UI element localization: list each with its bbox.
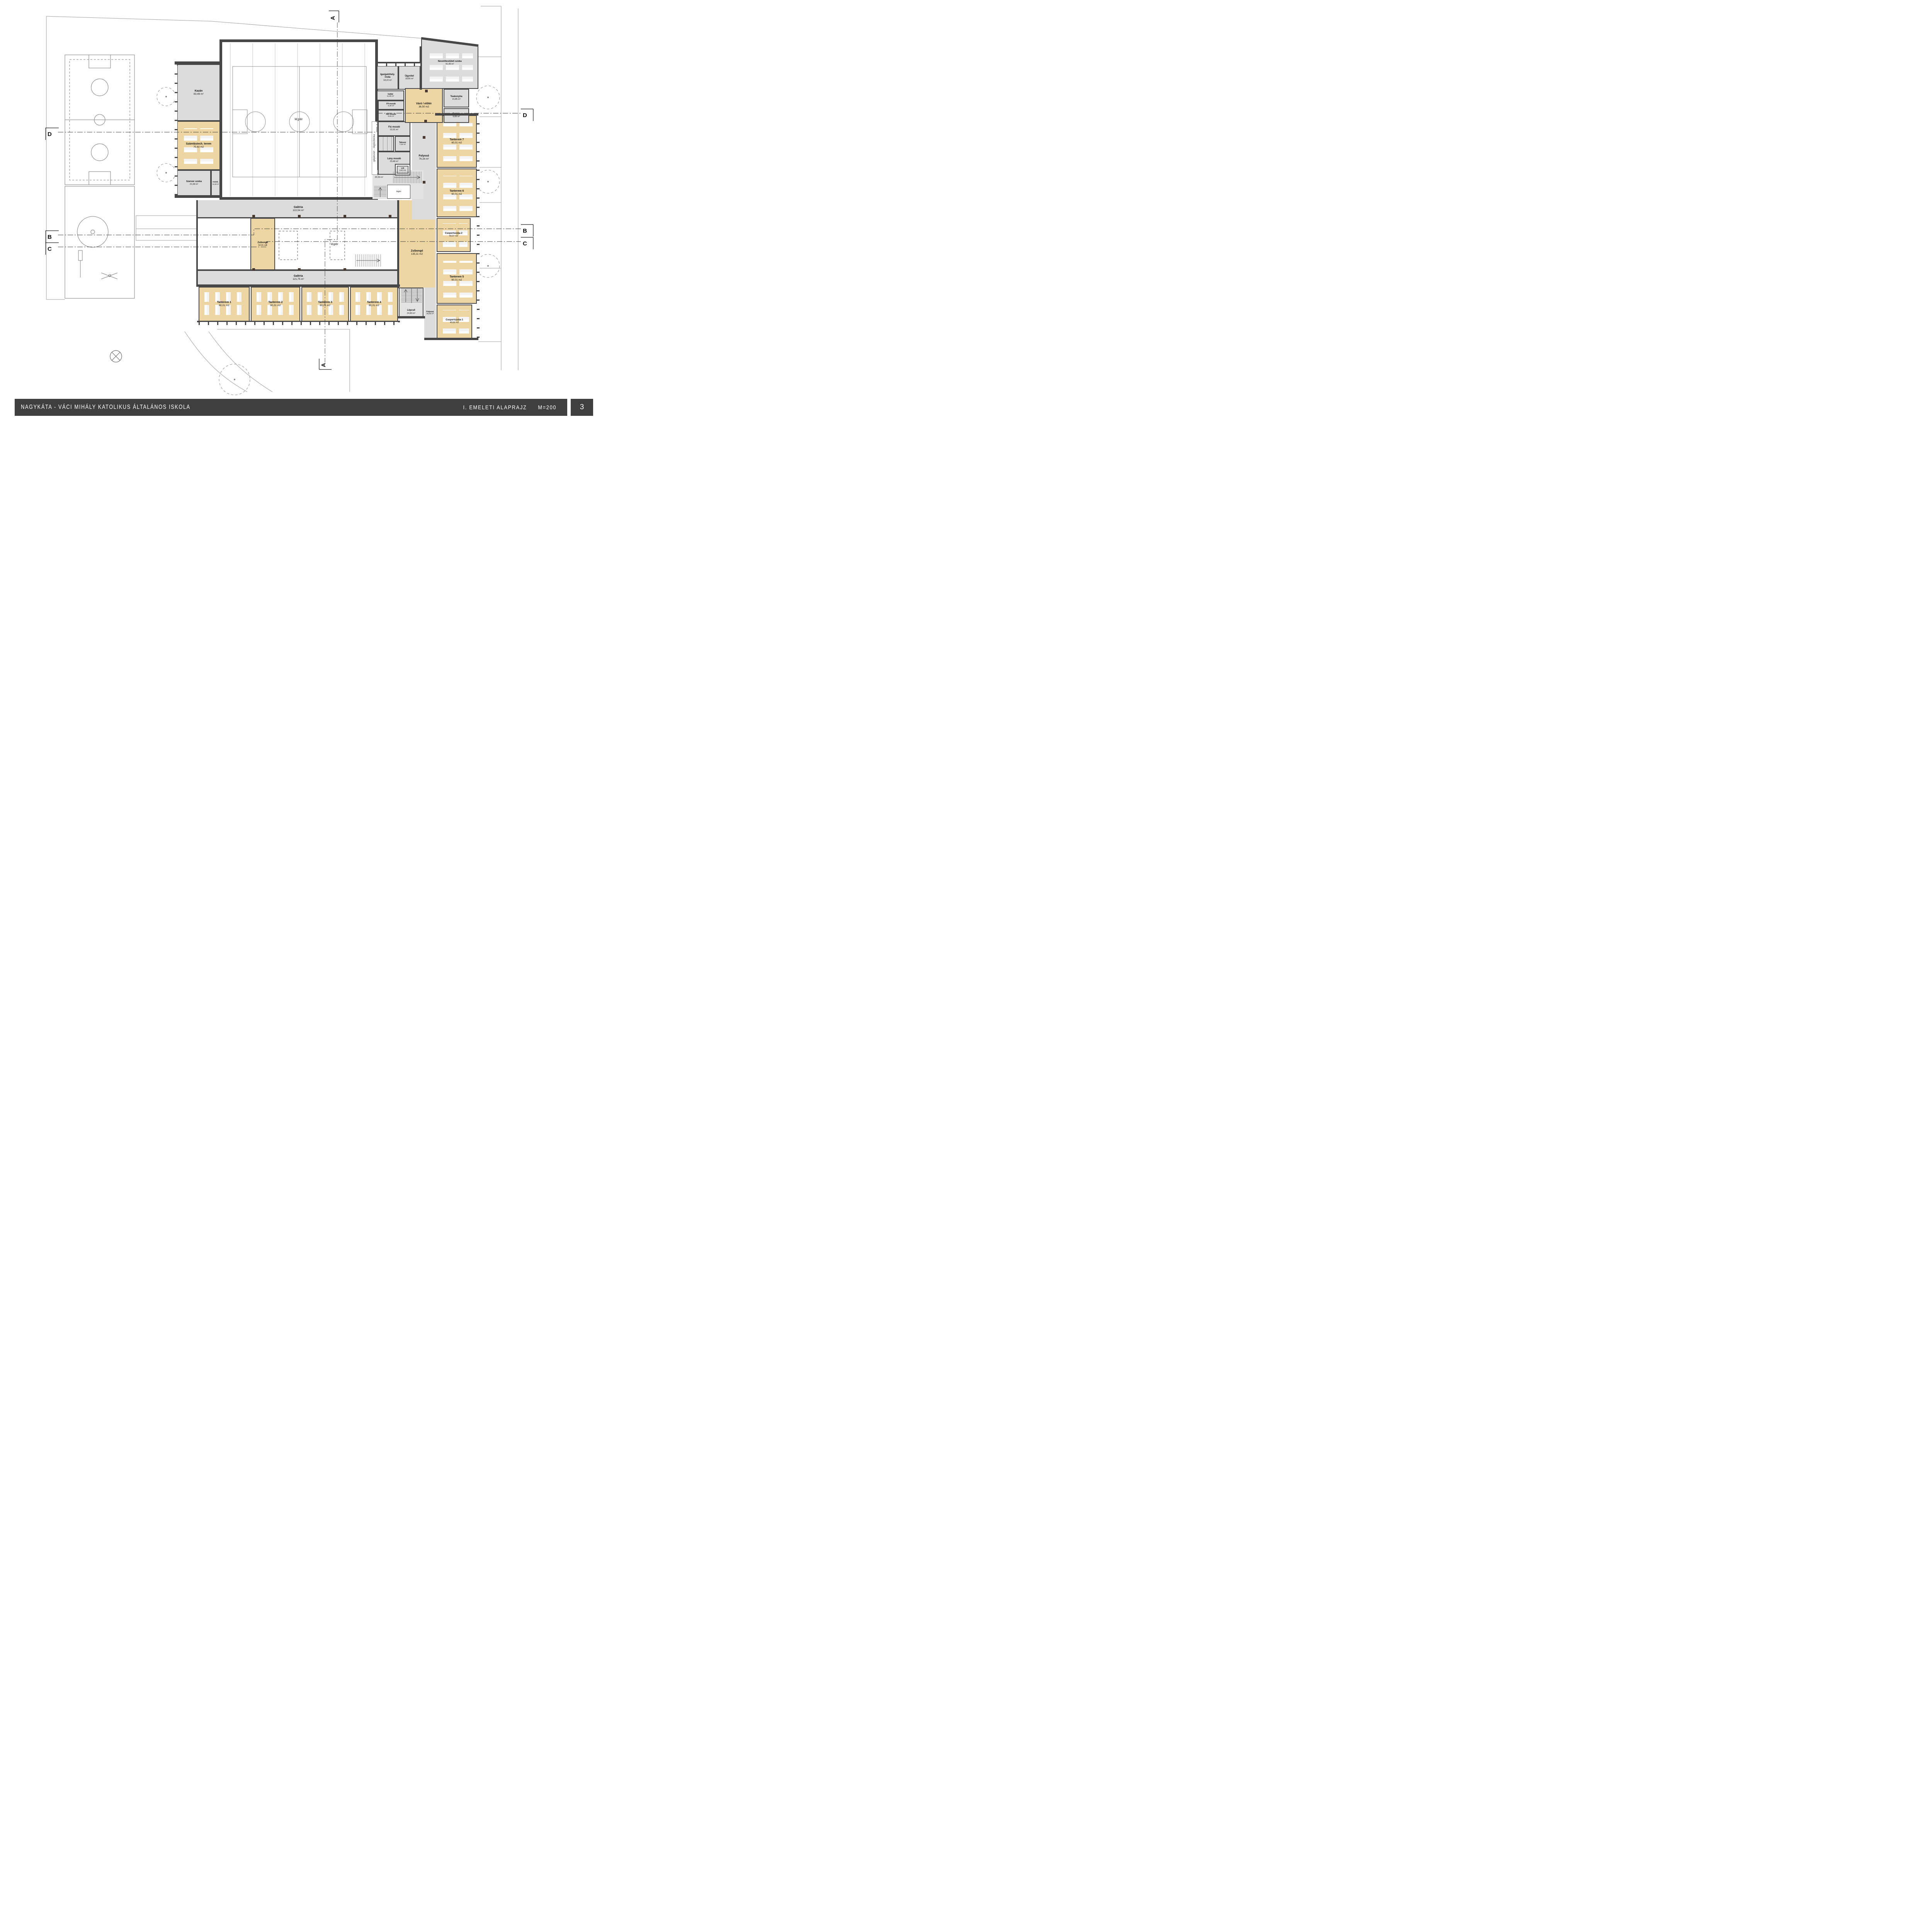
drawing-scale: M=200: [538, 404, 556, 411]
window-band: [175, 66, 177, 195]
wall: [435, 113, 478, 116]
wall: [196, 200, 198, 286]
room-szamtastech: Számtástech. terem 75,60 m2: [177, 121, 220, 170]
column: [298, 268, 301, 271]
window-band: [477, 116, 480, 338]
column: [425, 90, 428, 92]
svg-text:D: D: [48, 131, 52, 138]
page-number-box: 3: [571, 399, 593, 416]
room-nevelotestuleti: Nevelőtestületi szoba 91,95 m²: [421, 37, 478, 89]
window-band: [199, 322, 398, 325]
room-tanterem2: Tanterem 2 60,01 m2: [251, 287, 300, 322]
room-tanterem1: Tanterem 1 60,01 m2: [199, 287, 250, 322]
wall: [398, 316, 425, 318]
marker-b-right: B: [521, 225, 533, 237]
playground: [65, 186, 134, 298]
room-csoportszoba2: Csoportszoba 2 40,37 m2: [437, 218, 471, 252]
room-tanterem5: Tanterem 5 60,01 m2: [437, 253, 477, 304]
svg-text:B: B: [523, 228, 527, 234]
wall: [424, 338, 478, 340]
svg-text:B: B: [48, 234, 52, 240]
wall: [420, 46, 422, 90]
drawing-title: I. EMELETI ALAPRAJZ: [463, 404, 527, 411]
svg-text:C: C: [48, 246, 52, 252]
room-tanterem7: Tanterem 7 60,01 m2: [437, 115, 477, 168]
column: [423, 181, 425, 184]
marker-c-right: C: [521, 237, 533, 249]
room-fiu-mosdo: Fiú mosdó 22,01 m²: [378, 121, 410, 136]
survey-mark-icon: [110, 351, 122, 362]
room-raktar: Raktár 9,89 m²: [444, 108, 469, 123]
room-csoportszoba1: Csoportszoba 1 40,00 m2: [437, 305, 472, 339]
room-takszer: Takszer 7,02 m²: [395, 136, 410, 151]
room-ffi-mosdo: Ffi mosdó 6,39 m²: [378, 100, 404, 110]
marker-a-top: A: [329, 11, 339, 22]
svg-text:A: A: [330, 16, 336, 20]
basketball-court: [65, 55, 134, 185]
wall: [196, 284, 400, 287]
floor-plan-sheet: légtér Kazán 83,49 m² Számtástech. terem…: [0, 0, 603, 426]
column: [252, 268, 255, 271]
room-varo-eloter: Váró / előtér 38,50 m2: [405, 88, 443, 123]
room-szerver: Szerver szoba 21,68 m²: [177, 170, 211, 196]
project-title: NAGYKÁTA - VÁCI MIHÁLY KATOLIKUS ÁLTALÁN…: [21, 404, 190, 411]
room-tanterem3: Tanterem 3 60,01 m2: [301, 287, 349, 322]
room-lift: Lift 3,60 m2: [395, 164, 410, 175]
room-tanterem4: Tanterem 4 60,01 m2: [350, 287, 398, 322]
room-folyoso-del: Folyosó 28,56 m²: [424, 288, 436, 339]
title-bar: NAGYKÁTA - VÁCI MIHÁLY KATOLIKUS ÁLTALÁN…: [15, 399, 567, 416]
room-kozlek: Közlek. 12,26 m²: [211, 170, 220, 196]
room-lepcso-del: Lépcső 24,83 m²: [399, 288, 423, 317]
room-irattar: Irattár 11,85 m²: [377, 90, 404, 100]
room-gepeszet-legtechnika: gépészet - légtechnika: [372, 121, 378, 175]
column: [344, 268, 346, 271]
column: [389, 215, 391, 218]
room-zsibongo-kis: Zsibongó 52,91 m2: [250, 218, 275, 271]
wall: [175, 195, 222, 198]
wall: [175, 61, 222, 65]
column: [252, 215, 255, 218]
room-teakonyha: Teakonyha 15,85 m²: [444, 89, 469, 107]
page-number: 3: [580, 403, 584, 412]
svg-text:C: C: [523, 240, 527, 247]
column: [298, 215, 301, 218]
column: [344, 215, 346, 218]
room-ugyvitel: Ügyvitel 18,66 m²: [398, 66, 420, 90]
room-igazgato: Igazgatóhely. iroda 18,22 m²: [377, 66, 398, 90]
room-gym-void: légtér: [219, 39, 378, 200]
room-galeria-also: Galéria 121,75 m²: [198, 271, 399, 285]
wall: [397, 200, 399, 288]
room-legter-lepcso: légtér: [387, 185, 410, 199]
marker-b-left: B: [46, 231, 59, 243]
svg-text:D: D: [523, 112, 527, 119]
room-tanterem6: Tanterem 6 60,01 m2: [437, 168, 477, 217]
window-band: [377, 63, 420, 66]
svg-text:A: A: [320, 363, 327, 367]
column: [423, 136, 425, 139]
room-kazan: Kazán 83,49 m²: [177, 64, 220, 121]
toilet-stalls: [378, 136, 394, 151]
marker-d-right: D: [521, 109, 533, 121]
column: [424, 120, 427, 123]
room-noi-mosdo: Női mosdó 8,26 m²: [378, 110, 404, 121]
marker-c-left: C: [46, 243, 59, 255]
marker-a-bottom: A: [319, 359, 332, 369]
room-legter-kozep: légtér: [198, 219, 398, 270]
marker-d-left: D: [46, 128, 59, 140]
